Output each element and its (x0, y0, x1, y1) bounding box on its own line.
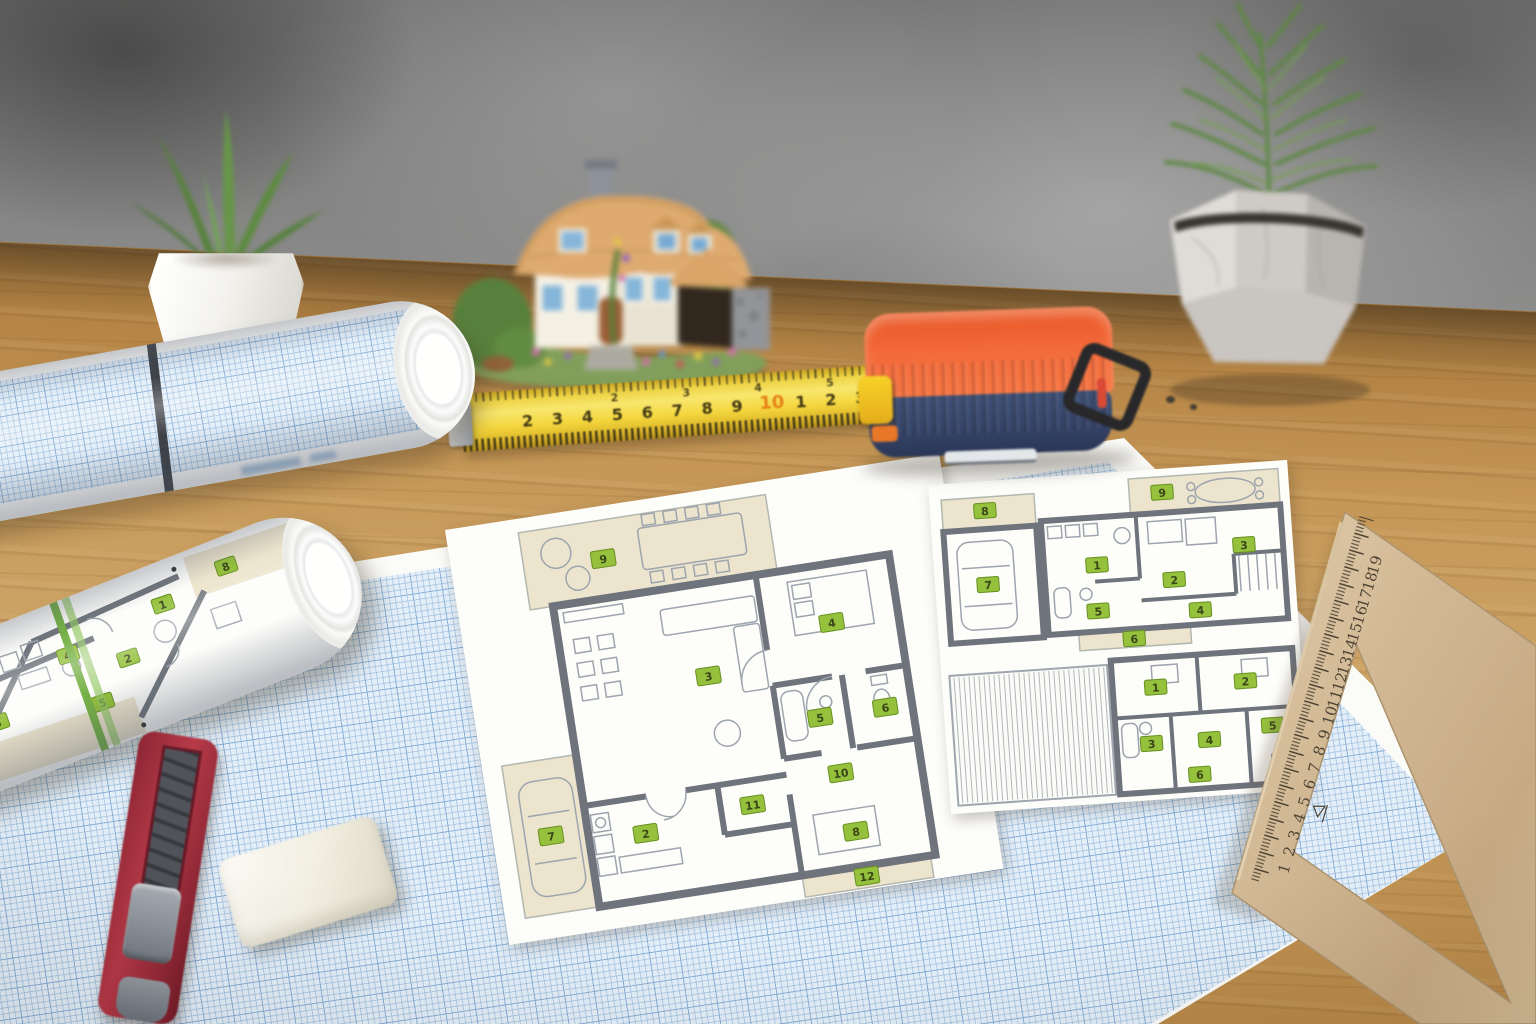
svg-text:6: 6 (1196, 768, 1205, 782)
svg-text:1: 1 (1093, 559, 1102, 573)
plan3-label-6: 6 (1188, 766, 1211, 782)
main-floorplan-sheet: 9 3 2 11 7 4 5 6 10 8 12 (445, 454, 1003, 946)
second-floorplan-drawing: 8 7 9 1 2 3 4 5 6 1 2 3 4 5 6 (928, 460, 1310, 814)
concrete-plant-pot (1152, 168, 1392, 408)
main-floorplan-drawing: 9 3 2 11 7 4 5 6 10 8 12 (445, 454, 1003, 946)
photo-architect-desk: 2 3 4 5 2 3 4 5 6 7 8 9 10 1 2 3 4 (0, 0, 1536, 1024)
tape-top-number: 5 (826, 376, 835, 390)
plan2-label-bath: 5 (1087, 603, 1110, 619)
svg-text:2: 2 (1170, 574, 1179, 588)
svg-text:6: 6 (1130, 633, 1139, 647)
main-plan-label-living: 3 (695, 666, 721, 686)
main-plan-label-bath: 5 (807, 707, 833, 727)
main-plan-label-wc: 6 (872, 697, 898, 717)
plan2-label-porch: 6 (1123, 630, 1146, 646)
miniature-house-model (440, 138, 785, 400)
plan2-label-room: 4 (1189, 602, 1212, 618)
plan2-label-stairs: 3 (1232, 536, 1255, 552)
tape-measure-case (863, 306, 1116, 465)
main-plan-label-porch: 12 (854, 866, 880, 886)
tape-number: 3 (551, 409, 563, 429)
tape-number-ten: 10 (759, 391, 785, 414)
svg-text:10: 10 (832, 766, 849, 781)
tape-number: 1 (795, 392, 807, 412)
svg-text:7: 7 (984, 579, 993, 593)
svg-text:5: 5 (1094, 605, 1103, 619)
svg-text:8: 8 (981, 505, 990, 519)
main-plan-label-terrace: 9 (590, 548, 616, 568)
svg-text:4: 4 (1196, 604, 1205, 618)
case-red-accent (1097, 378, 1107, 408)
tape-number: 2 (521, 411, 533, 431)
svg-text:4: 4 (1205, 734, 1214, 748)
plan3-label-1: 1 (1144, 679, 1167, 695)
tape-number: 5 (611, 405, 623, 425)
svg-text:11: 11 (744, 798, 761, 813)
main-plan-label-garage: 7 (538, 826, 564, 846)
tape-number: 7 (671, 401, 683, 421)
desk-screw (1166, 396, 1175, 403)
tape-top-number: 3 (682, 386, 691, 400)
svg-text:12: 12 (858, 869, 875, 884)
svg-text:9: 9 (1158, 486, 1167, 500)
plan2-label-garage: 7 (977, 576, 1000, 592)
tape-number: 8 (701, 398, 713, 418)
svg-text:1: 1 (1151, 681, 1160, 695)
second-floorplan-sheet: 8 7 9 1 2 3 4 5 6 1 2 3 4 5 6 (928, 460, 1310, 814)
plan3-label-3: 3 (1140, 735, 1163, 751)
case-lock-button (858, 375, 894, 424)
main-plan-label-bedroom: 4 (819, 612, 845, 632)
plan2-label-kitchen: 1 (1085, 557, 1108, 573)
svg-text:5: 5 (1268, 719, 1277, 733)
case-lock-button-lower (871, 425, 898, 442)
plan3-label-4: 4 (1198, 731, 1221, 747)
tape-number: 4 (581, 407, 593, 427)
plan3-label-5: 5 (1261, 717, 1284, 733)
tape-number: 2 (825, 390, 837, 410)
knife-end-cap (114, 975, 172, 1024)
main-plan-label-room: 8 (843, 821, 869, 841)
tape-top-number: 2 (610, 391, 619, 405)
white-pot-rim-shadow (152, 244, 300, 274)
svg-text:2: 2 (1241, 675, 1250, 689)
tape-number: 9 (731, 396, 743, 416)
main-plan-label-pantry: 11 (739, 794, 765, 814)
main-plan-label-hall: 10 (828, 763, 854, 783)
main-plan-label-kitchen: 2 (633, 823, 659, 843)
plan2-label-terrace: 9 (1151, 484, 1174, 500)
plan2-label-hall: 2 (1163, 571, 1186, 587)
svg-text:3: 3 (1147, 738, 1156, 752)
svg-text:3: 3 (1240, 539, 1249, 553)
tape-number: 6 (641, 403, 653, 423)
desk-screw (1190, 404, 1197, 410)
plan3-label-2: 2 (1234, 673, 1257, 689)
plan2-label-storage: 8 (973, 502, 996, 518)
